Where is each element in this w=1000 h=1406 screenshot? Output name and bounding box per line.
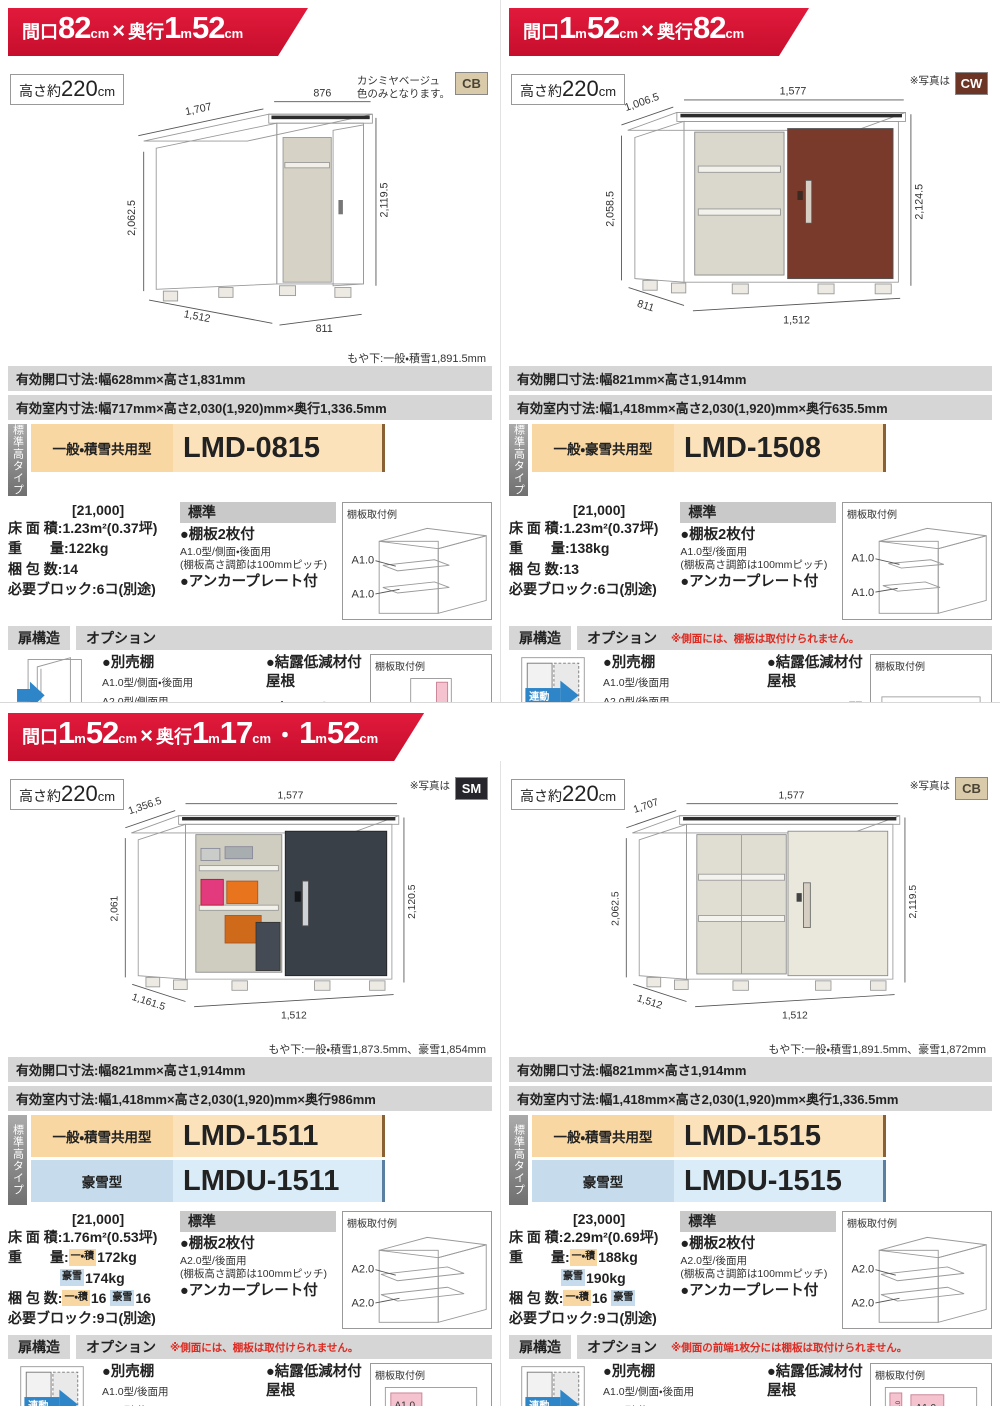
model-row: 一般・積雪共用型 LMD-1515 — [532, 1115, 992, 1157]
shed-illustration: 2,062.5 2,119.5 1,707 876 1,512 811 — [30, 66, 470, 334]
photo-note: ※写真は SM — [410, 777, 488, 800]
model-row: 一般・積雪共用型 LMD-1511 — [31, 1115, 492, 1157]
door-structure-figure: 連動 2連片引き戸 — [8, 1363, 96, 1406]
color-badge: CB — [955, 777, 988, 800]
door-structure-figure: ドア — [8, 654, 96, 702]
door-options-header: 扉構造 オプション※側面の前端1枚分には棚板は取付けられません。 — [509, 1335, 992, 1359]
model-name: LMD-1511 — [173, 1115, 385, 1157]
type-tab: 標準高タイプ — [509, 1115, 528, 1205]
shelf-label: A1.0 — [351, 554, 374, 566]
dim-label: 876 — [313, 87, 331, 99]
product-panel-lmd-0815: 間口82cm×奥行1m52cm 高さ約220cm カシミヤベージュ色のみとなりま… — [0, 0, 500, 702]
height-label: 高さ約220cm — [10, 74, 124, 105]
shelf-example-diagram: A2.0 A2.0 — [847, 1230, 987, 1326]
dim-label: 1,512 — [281, 1011, 307, 1022]
door-options-header: 扉構造 オプション※側面には、棚板は取付けられません。 — [509, 626, 992, 650]
model-block: 標準高タイプ 一般・積雪共用型 LMD-1515 豪雪型 LMDU-1515 — [509, 1115, 992, 1205]
option-shelf-example-box: 棚板取付例 A1.0 ▲正面 は半パネル — [370, 1363, 492, 1406]
opening-size-bar: 有効開口寸法:幅628mm×高さ1,831mm — [8, 366, 492, 391]
standard-header: 標準 — [180, 1211, 336, 1232]
shelf-label: A2.0 — [851, 1298, 874, 1310]
door-options-header: 扉構造 オプション — [8, 626, 492, 650]
plan-label: A1.0 — [895, 1400, 902, 1406]
plan-diagram: A2.0 — [875, 673, 987, 702]
sliding-door-icon: 連動 — [513, 1363, 593, 1406]
photo-note: ※写真は CB — [910, 777, 988, 800]
opening-size-bar: 有効開口寸法:幅821mm×高さ1,914mm — [8, 1057, 492, 1082]
spec-area: [21,000] 床 面 積:1.23m²(0.37坪) 重 量:138kg 梱… — [509, 502, 992, 620]
shelf-example-box: 棚板取付例 A2.0 A2.0 — [342, 1211, 492, 1329]
door-options-header: 扉構造 オプション※側面には、棚板は取付けられません。 — [8, 1335, 492, 1359]
interior-size-bar: 有効室内寸法:幅1,418mm×高さ2,030(1,920)mm×奥行986mm — [8, 1086, 492, 1111]
price: [23,000] — [509, 1211, 674, 1227]
door-arrow-label: 連動 — [529, 690, 549, 702]
shelf-example-box: 棚板取付例 A1.0 A1.0 — [842, 502, 992, 620]
shelf-label: A1.0 — [351, 589, 374, 601]
dim-label: 2,124.5 — [913, 184, 925, 220]
price: [21,000] — [509, 502, 674, 518]
sliding-door-icon: 連動 — [12, 1363, 92, 1406]
price: [21,000] — [8, 1211, 174, 1227]
moya-note: もや下:一般・積雪1,891.5mm、豪雪1,872mm — [768, 1041, 986, 1057]
color-badge: CB — [455, 72, 488, 95]
product-photo: 高さ約220cm ※写真は CB — [509, 771, 992, 1057]
height-label: 高さ約220cm — [10, 779, 124, 810]
shelf-example-box: 棚板取付例 A2.0 A2.0 — [842, 1211, 992, 1329]
dim-label: 1,512 — [783, 314, 810, 326]
dim-label: 1,577 — [778, 791, 804, 802]
dim-label: 2,061 — [110, 895, 121, 921]
shed-illustration: 2,058.5 2,124.5 1,006.5 1,577 811 1,512 — [531, 66, 971, 334]
bottom-section: 間口1m52cm×奥行1m17cm・1m52cm 高さ約220cm ※写真は S… — [0, 702, 1000, 1406]
dim-label: 2,119.5 — [379, 182, 391, 217]
color-badge: CW — [955, 72, 988, 95]
door-options-area: 連動 2連片引き戸 ●別売棚 A1.0型/側面・後面用 A2.0型/後面用 ●結… — [509, 1363, 992, 1406]
option-shelf-example-box: 棚板取付例 A2.0 ▲正面 — [370, 654, 492, 702]
dim-label: 2,119.5 — [908, 885, 919, 919]
product-photo: 高さ約220cm カシミヤベージュ色のみとなります。 CB — [8, 66, 492, 366]
dim-label: 1,512 — [781, 1011, 807, 1022]
door-structure-figure: 連動 2連片引き戸 — [509, 654, 597, 702]
type-tab: 標準高タイプ — [509, 424, 528, 496]
option-warning: ※側面には、棚板は取付けられません。 — [671, 631, 859, 646]
option-shelf-example-box: 棚板取付例 A1.0 A1.0 ▲正面 — [870, 1363, 992, 1406]
interior-size-bar: 有効室内寸法:幅717mm×高さ2,030(1,920)mm×奥行1,336.5… — [8, 395, 492, 420]
dim-label: 2,120.5 — [407, 884, 418, 919]
dim-label: 1,707 — [632, 797, 660, 816]
product-photo: 高さ約220cm ※写真は SM — [8, 771, 492, 1057]
opening-size-bar: 有効開口寸法:幅821mm×高さ1,914mm — [509, 1057, 992, 1082]
dim-label: 1,707 — [184, 101, 213, 118]
model-name: LMDU-1511 — [173, 1160, 385, 1202]
model-row: 一般・豪雪共用型 LMD-1508 — [532, 424, 992, 472]
height-label: 高さ約220cm — [511, 74, 625, 105]
model-block: 標準高タイプ 一般・積雪共用型 LMD-0815 — [8, 424, 492, 496]
opening-size-bar: 有効開口寸法:幅821mm×高さ1,914mm — [509, 366, 992, 391]
spec-area: [21,000] 床 面 積:1.76m²(0.53坪) 重 量:一・積172k… — [8, 1211, 492, 1329]
dim-label: 1,161.5 — [130, 992, 166, 1013]
moya-note: もや下:一般・積雪1,891.5mm — [347, 350, 486, 366]
sliding-door-icon: 連動 — [513, 654, 593, 702]
shelf-example-box: 棚板取付例 A1.0 A1.0 — [342, 502, 492, 620]
standard-header: 標準 — [680, 502, 836, 523]
shelf-label: A2.0 — [351, 1298, 374, 1310]
shelf-label: A1.0 — [851, 587, 874, 599]
dim-label: 2,062.5 — [126, 200, 138, 236]
model-name: LMD-1515 — [674, 1115, 886, 1157]
price: [21,000] — [8, 502, 174, 518]
plan-diagram: A1.0 A1.0 — [875, 1382, 987, 1406]
model-name: LMDU-1515 — [674, 1160, 886, 1202]
shelf-label: A1.0 — [851, 553, 874, 565]
dim-label: 1,006.5 — [623, 91, 661, 114]
product-photo: 高さ約220cm ※写真は CW — [509, 66, 992, 366]
standard-header: 標準 — [180, 502, 336, 523]
door-options-area: 連動 2連片引き戸 ●別売棚 A1.0型/後面用 A2.0型/後面用 ●結露低減… — [8, 1363, 492, 1406]
dim-label: 2,062.5 — [610, 891, 621, 926]
product-panel-lmd-1508: 間口1m52cm×奥行82cm 高さ約220cm ※写真は CW — [500, 0, 1000, 702]
dim-label: 1,356.5 — [127, 796, 163, 818]
shelf-example-diagram: A1.0 A1.0 — [847, 521, 987, 617]
product-panel-lmd-1511: 高さ約220cm ※写真は SM — [0, 761, 500, 1406]
model-row: 豪雪型 LMDU-1515 — [532, 1160, 992, 1202]
shelf-example-diagram: A2.0 A2.0 — [347, 1230, 487, 1326]
dim-label: 2,058.5 — [604, 191, 616, 227]
shelf-example-diagram: A1.0 A1.0 — [347, 521, 487, 617]
model-block: 標準高タイプ 一般・積雪共用型 LMD-1511 豪雪型 LMDU-1511 — [8, 1115, 492, 1205]
photo-note: カシミヤベージュ色のみとなります。 CB — [357, 72, 488, 101]
door-options-area: 連動 2連片引き戸 ●別売棚 A1.0型/後面用 A2.0型/後面用 ●結露低減… — [509, 654, 992, 702]
interior-size-bar: 有効室内寸法:幅1,418mm×高さ2,030(1,920)mm×奥行635.5… — [509, 395, 992, 420]
option-warning: ※側面の前端1枚分には棚板は取付けられません。 — [671, 1340, 907, 1355]
model-name: LMD-0815 — [173, 424, 385, 472]
shelf-label: A2.0 — [351, 1263, 374, 1275]
model-name: LMD-1508 — [674, 424, 886, 472]
product-panel-lmd-1515: 高さ約220cm ※写真は CB — [500, 761, 1000, 1406]
option-warning: ※側面には、棚板は取付けられません。 — [170, 1340, 358, 1355]
color-badge: SM — [455, 777, 488, 800]
shelf-label: A2.0 — [851, 1263, 874, 1275]
interior-size-bar: 有効室内寸法:幅1,418mm×高さ2,030(1,920)mm×奥行1,336… — [509, 1086, 992, 1111]
model-block: 標準高タイプ 一般・豪雪共用型 LMD-1508 — [509, 424, 992, 496]
dim-label: 1,577 — [278, 791, 304, 802]
dim-label: 811 — [316, 323, 333, 334]
height-label: 高さ約220cm — [511, 779, 625, 810]
single-door-icon — [12, 654, 92, 702]
size-banner: 間口82cm×奥行1m52cm — [8, 8, 308, 56]
plan-diagram: A1.0 — [375, 1382, 487, 1406]
door-structure-figure: 連動 2連片引き戸 — [509, 1363, 597, 1406]
dim-label: 1,577 — [779, 86, 806, 98]
type-tab: 標準高タイプ — [8, 424, 27, 496]
top-row: 間口82cm×奥行1m52cm 高さ約220cm カシミヤベージュ色のみとなりま… — [0, 0, 1000, 702]
moya-note: もや下:一般・積雪1,873.5mm、豪雪1,854mm — [268, 1041, 486, 1057]
model-row: 一般・積雪共用型 LMD-0815 — [31, 424, 492, 472]
option-shelf-example-box: 棚板取付例 A2.0 ▲正面 — [870, 654, 992, 702]
standard-header: 標準 — [680, 1211, 836, 1232]
spec-area: [21,000] 床 面 積:1.23m²(0.37坪) 重 量:122kg 梱… — [8, 502, 492, 620]
plan-diagram: A2.0 — [375, 673, 487, 702]
dim-label: 1,512 — [635, 993, 663, 1012]
type-tab: 標準高タイプ — [8, 1115, 27, 1205]
banner-text: 間口 — [22, 22, 58, 42]
door-options-area: ドア ●別売棚 A1.0型/側面・後面用 A2.0型/側面用 ●結露低減材付屋根… — [8, 654, 492, 702]
size-banner: 間口1m52cm×奥行82cm — [509, 8, 809, 56]
plan-label: A1.0 — [394, 1400, 415, 1406]
spec-area: [23,000] 床 面 積:2.29m²(0.69坪) 重 量:一・積188k… — [509, 1211, 992, 1329]
photo-note: ※写真は CW — [910, 72, 988, 95]
model-row: 豪雪型 LMDU-1511 — [31, 1160, 492, 1202]
dim-label: 811 — [635, 298, 655, 315]
size-banner-bottom: 間口1m52cm×奥行1m17cm・1m52cm — [8, 713, 424, 761]
